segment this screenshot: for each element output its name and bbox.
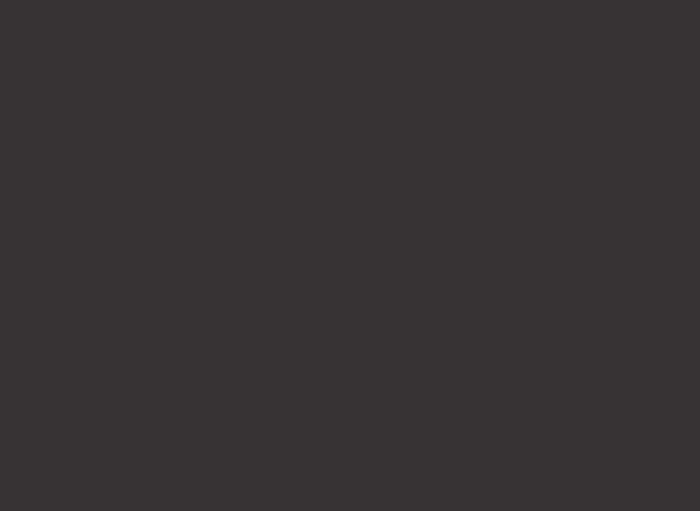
blank-screen — [0, 0, 700, 511]
